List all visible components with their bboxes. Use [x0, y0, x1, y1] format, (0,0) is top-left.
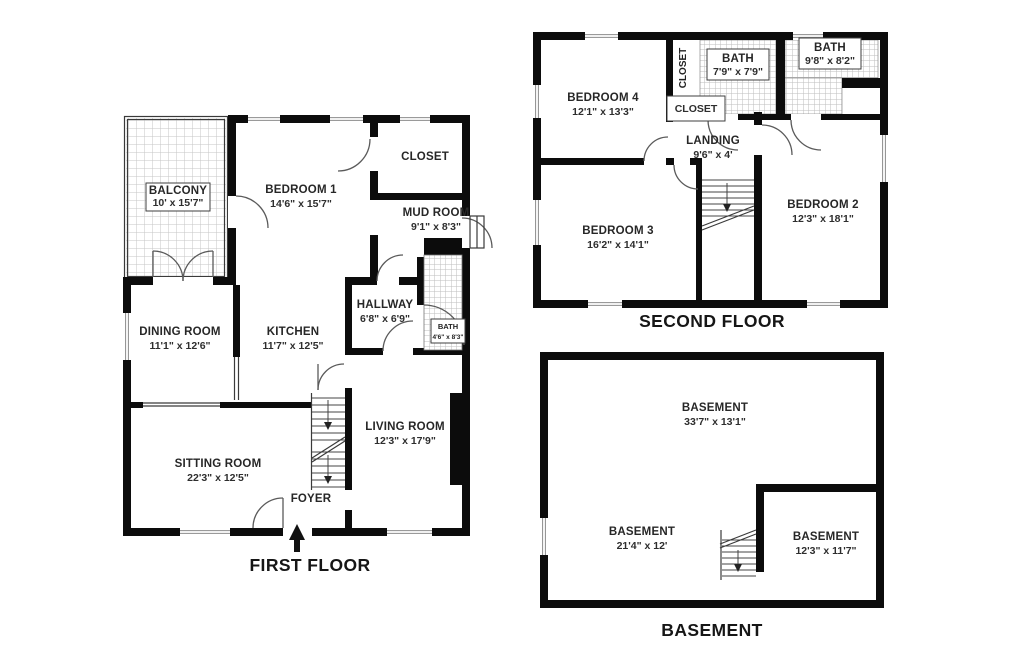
basement-title: BASEMENT	[661, 620, 762, 640]
room-label-bath-center-dims: 7'9" x 7'9"	[713, 66, 763, 78]
room-label-bath-center-name: BATH	[722, 53, 754, 65]
room-label-bedroom3-name: BEDROOM 3	[582, 225, 653, 237]
room-label-landing-dims: 9'6" x 4'	[693, 149, 732, 161]
basement-staircase	[720, 530, 756, 580]
room-label-hallway-dims: 6'8" x 6'9"	[360, 313, 410, 325]
second-floor-staircase	[702, 180, 754, 230]
room-label-mudroom-dims: 9'1" x 8'3"	[411, 221, 461, 233]
room-label-bath-right-name: BATH	[814, 42, 846, 54]
room-label-sitting-dims: 22'3" x 12'5"	[187, 472, 249, 484]
room-label-balcony-dims: 10' x 15'7"	[153, 197, 204, 209]
first-floor-staircase	[312, 393, 346, 490]
room-label-dining-dims: 11'1" x 12'6"	[149, 340, 210, 352]
room-label-bedroom2-name: BEDROOM 2	[787, 199, 858, 211]
room-label-bath-dims: 4'6" x 8'3"	[433, 334, 464, 341]
basement-plan: BASEMENT 33'7" x 13'1" BASEMENT 21'4" x …	[540, 352, 884, 640]
room-label-bedroom3-dims: 16'2" x 14'1"	[587, 239, 649, 251]
room-label-bedroom4-dims: 12'1" x 13'3"	[572, 106, 634, 118]
second-floor-plan: BEDROOM 4 12'1" x 13'3" CLOSET CLOSET BA…	[533, 32, 888, 331]
basement-walls	[540, 352, 884, 608]
floor-plan-canvas: BALCONY 10' x 15'7" BEDROOM 1 14'6" x 15…	[0, 0, 1024, 659]
room-label-kitchen-name: KITCHEN	[267, 326, 320, 338]
room-label-closet-lower: CLOSET	[675, 103, 718, 115]
room-label-kitchen-dims: 11'7" x 12'5"	[262, 340, 323, 352]
room-label-basement-main-name: BASEMENT	[682, 402, 748, 414]
room-label-bath-right-dims: 9'8" x 8'2"	[805, 55, 855, 67]
room-label-living-dims: 12'3" x 17'9"	[374, 435, 436, 447]
room-label-bedroom1-dims: 14'6" x 15'7"	[270, 198, 332, 210]
room-label-closet-upper: CLOSET	[678, 48, 689, 89]
room-label-bath-name: BATH	[438, 322, 458, 331]
room-label-foyer: FOYER	[291, 493, 332, 505]
room-label-hallway-name: HALLWAY	[357, 299, 414, 311]
room-label-bedroom4-name: BEDROOM 4	[567, 92, 639, 104]
room-label-closet: CLOSET	[401, 151, 449, 163]
room-label-dining-name: DINING ROOM	[139, 326, 220, 338]
room-label-basement-right-dims: 12'3" x 11'7"	[795, 545, 856, 557]
room-label-balcony-name: BALCONY	[149, 185, 207, 197]
room-label-sitting-name: SITTING ROOM	[175, 458, 262, 470]
room-label-mudroom-name: MUD ROOM	[403, 207, 470, 219]
first-floor-plan: BALCONY 10' x 15'7" BEDROOM 1 14'6" x 15…	[123, 115, 492, 575]
room-label-living-name: LIVING ROOM	[365, 421, 445, 433]
room-label-bedroom1-name: BEDROOM 1	[265, 184, 337, 196]
bath-right-hatch-lower	[785, 78, 842, 114]
floor-plan-svg: BALCONY 10' x 15'7" BEDROOM 1 14'6" x 15…	[0, 0, 1024, 659]
room-label-basement-right-name: BASEMENT	[793, 531, 859, 543]
second-floor-title: SECOND FLOOR	[639, 311, 785, 331]
room-label-landing-name: LANDING	[686, 135, 740, 147]
room-label-basement-left-dims: 21'4" x 12'	[617, 540, 668, 552]
basement-windows	[540, 518, 548, 555]
room-label-basement-main-dims: 33'7" x 13'1"	[684, 416, 746, 428]
first-floor-title: FIRST FLOOR	[249, 555, 370, 575]
room-label-basement-left-name: BASEMENT	[609, 526, 675, 538]
room-label-bedroom2-dims: 12'3" x 18'1"	[792, 213, 854, 225]
